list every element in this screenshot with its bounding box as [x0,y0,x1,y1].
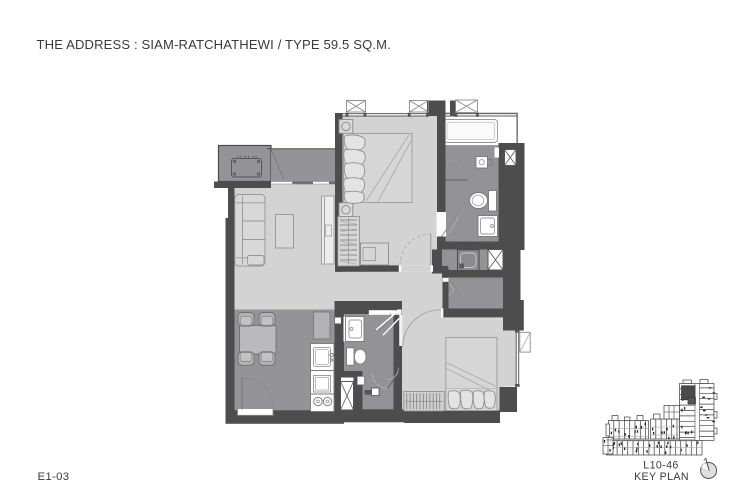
svg-text:E1-03: E1-03 [38,471,70,483]
svg-text:THE ADDRESS : SIAM-RATCHATHEWI: THE ADDRESS : SIAM-RATCHATHEWI / TYPE 59… [37,37,391,52]
svg-text:L10-46: L10-46 [643,460,678,472]
svg-text:KEY PLAN: KEY PLAN [634,471,689,483]
